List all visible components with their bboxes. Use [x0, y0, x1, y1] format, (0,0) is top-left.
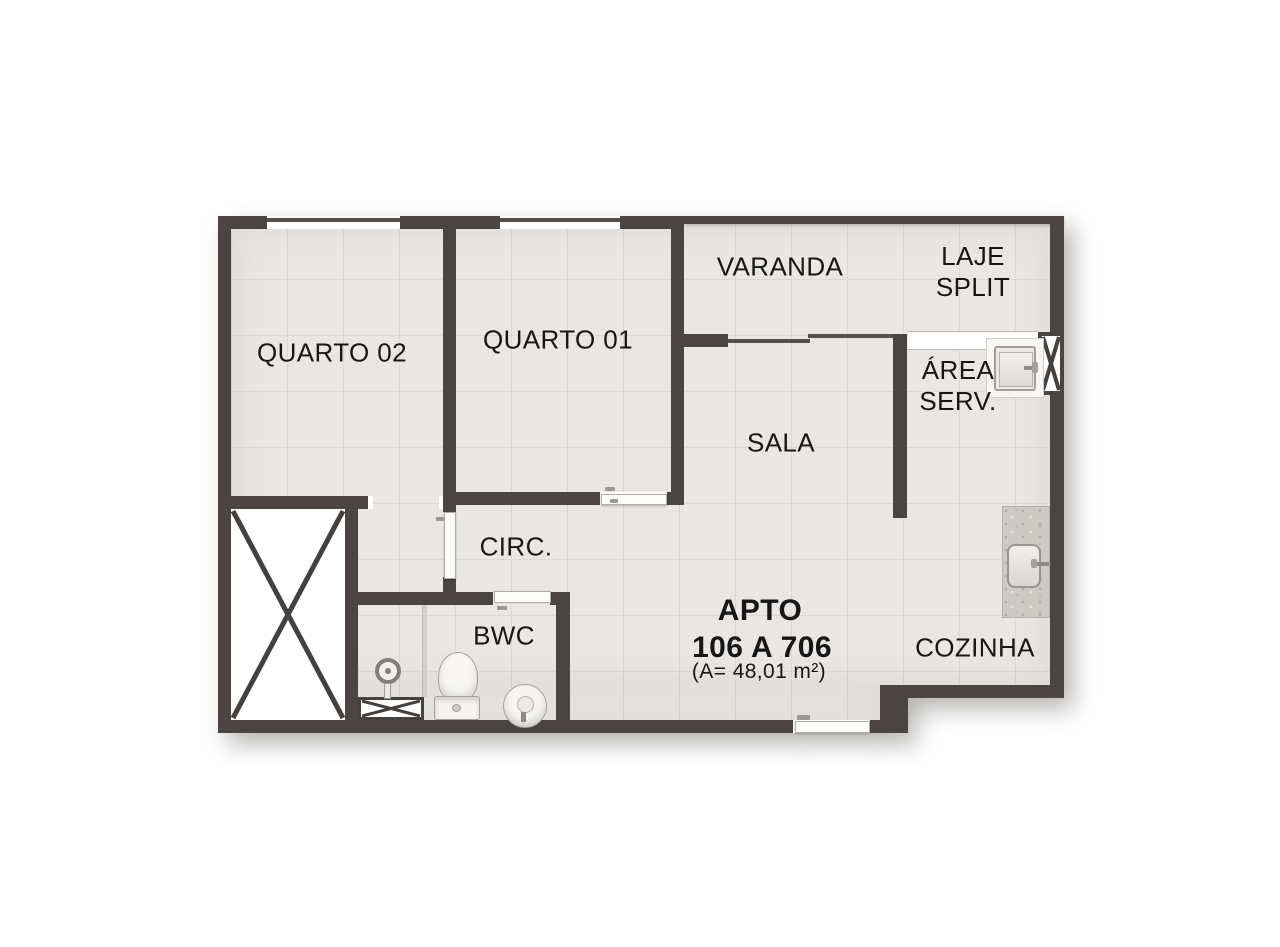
- wall-quarto01-door-column: [667, 492, 684, 505]
- door-bwc-leaf: [494, 591, 551, 603]
- apartment-title: APTO: [718, 594, 802, 628]
- duct-shaft-x-icon: [1042, 336, 1060, 391]
- wall-void-right: [345, 496, 358, 733]
- wall-quarto01-right: [671, 216, 684, 492]
- door-quarto02-jamb-left: [368, 496, 373, 509]
- label-varanda: VARANDA: [717, 252, 844, 283]
- floor-plan-canvas: QUARTO 02 QUARTO 01 VARANDA LAJE SPLIT Á…: [0, 0, 1280, 947]
- shower-tray-x-icon: [361, 700, 421, 717]
- toilet-flush-button: [452, 704, 461, 712]
- wall-bwc-right: [556, 592, 570, 720]
- window-quarto02-glass: [267, 218, 400, 222]
- sliding-door-panel-2: [808, 334, 893, 338]
- apartment-area: (A= 48,01 m²): [692, 660, 826, 684]
- label-bwc: BWC: [473, 621, 535, 652]
- shower-glass-partition: [422, 605, 427, 697]
- door-bwc-handle: [497, 606, 507, 610]
- wall-bottom-left: [218, 720, 793, 733]
- wall-quarto01-bottom: [443, 492, 600, 505]
- label-sala: SALA: [747, 428, 815, 459]
- sliding-door-panel-1: [728, 339, 810, 343]
- label-quarto02: QUARTO 02: [257, 338, 407, 369]
- kitchen-faucet-knob: [1031, 559, 1037, 568]
- door-quarto01-handle: [605, 487, 615, 491]
- toilet-bowl: [438, 652, 478, 702]
- shower-arm: [384, 683, 391, 699]
- shower-head-center: [385, 668, 391, 674]
- label-laje-split-line1: LAJE: [936, 241, 1010, 272]
- washbasin-drain: [517, 696, 534, 713]
- door-quarto02-handle: [436, 517, 444, 521]
- floor-plan: QUARTO 02 QUARTO 01 VARANDA LAJE SPLIT Á…: [0, 0, 1280, 947]
- door-quarto02-jamb-right: [439, 496, 443, 509]
- wall-varanda-sala: [684, 334, 728, 347]
- wall-bottom-kitchen: [880, 685, 1064, 698]
- wall-bedroom-divider: [443, 216, 456, 512]
- label-area-serv-line2: SERV.: [919, 386, 996, 417]
- door-quarto01-handle-2: [610, 499, 618, 503]
- label-laje-split-line2: SPLIT: [936, 272, 1010, 303]
- void-shaft-x-icon: [231, 509, 345, 720]
- wall-sala-right: [893, 334, 907, 518]
- wall-right: [1050, 216, 1064, 698]
- wall-left: [218, 216, 231, 733]
- window-quarto01-glass: [500, 218, 620, 222]
- label-area-serv: ÁREA SERV.: [919, 355, 996, 417]
- label-laje-split: LAJE SPLIT: [936, 241, 1010, 303]
- label-circ: CIRC.: [480, 532, 553, 563]
- door-entry-handle: [797, 715, 810, 720]
- laundry-faucet-knob: [1032, 362, 1038, 373]
- wall-top-balcony-parapet: [684, 216, 1064, 224]
- label-cozinha: COZINHA: [915, 633, 1035, 664]
- door-entry-leaf: [795, 721, 870, 733]
- label-area-serv-line1: ÁREA: [919, 355, 996, 386]
- washbasin-faucet: [521, 712, 526, 722]
- wall-bwc-top: [350, 592, 493, 605]
- door-quarto02-leaf: [444, 512, 456, 579]
- label-quarto01: QUARTO 01: [483, 325, 633, 356]
